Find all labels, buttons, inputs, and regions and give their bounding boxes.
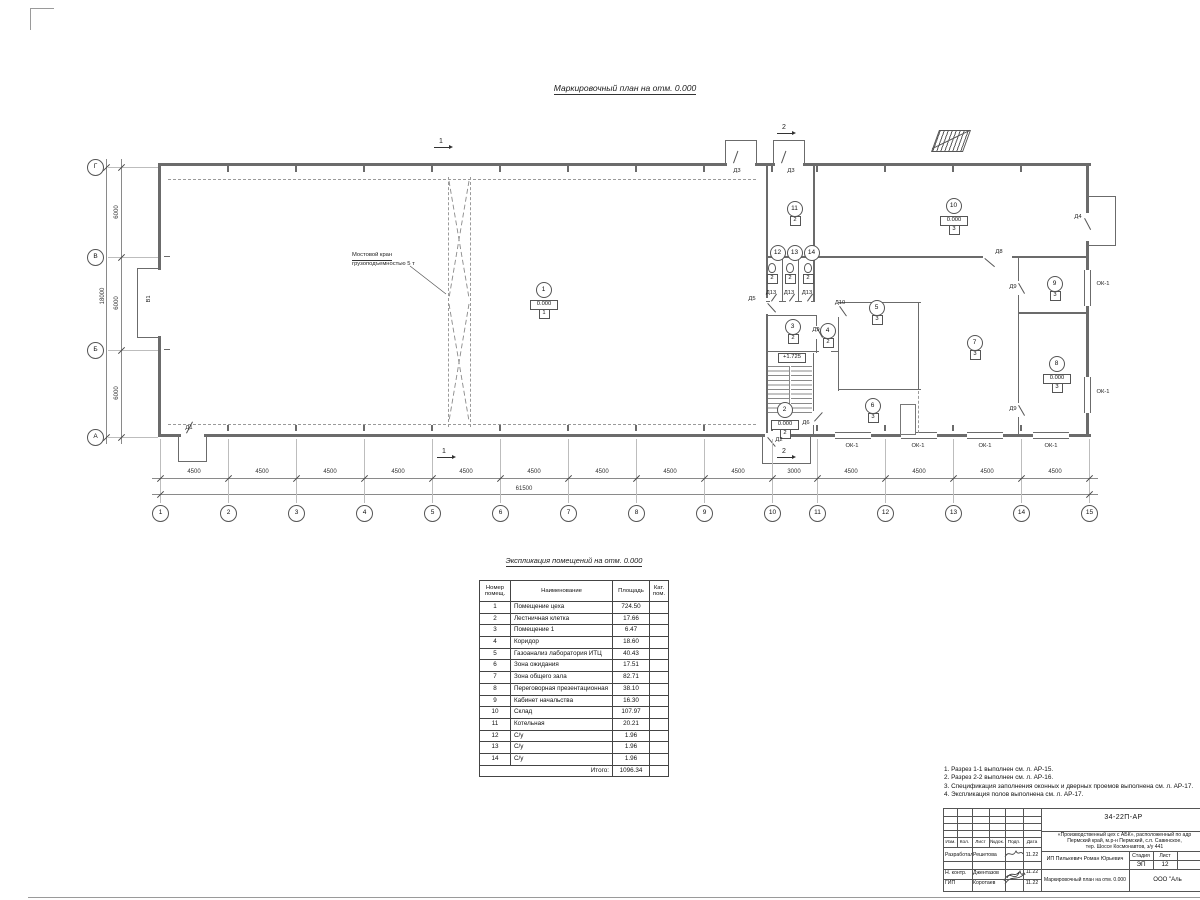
notes-block: 1. Разрез 1-1 выполнен см. л. АР-15.2. Р… [944,766,1198,800]
axis-bubble: 5 [424,505,441,522]
wall [756,140,757,164]
stamp-grid-line [944,879,1041,880]
zone-boundary [918,391,919,433]
room-category-cell [650,625,669,637]
axis-bubble: 2 [220,505,237,522]
section-mark-line [777,457,792,458]
axis-extension-line [296,439,297,503]
col-header-name: Наименование [511,581,613,602]
wall [762,463,811,464]
crane-label-line1: Мостовой кран [352,252,392,261]
doc-number: 34-22П-АР [1041,814,1200,822]
room-category-box: 2 [790,216,801,226]
drawing-sheet: { "titles": { "plan": "Маркировочный пла… [0,0,1200,900]
column-tick [499,166,500,172]
stamp-grid-line [1041,809,1042,891]
door-label: Д9 [999,285,1027,291]
section-mark-line [777,133,792,134]
room-name-cell: Газоанализ лаборатория ИТЦ [511,648,613,660]
axis-bubble: 15 [1081,505,1098,522]
room-category-cell [650,637,669,649]
column-tick [164,256,170,257]
column-tick [635,425,636,431]
axis-extension-line [108,257,158,258]
stamp-grid-line [972,809,973,891]
window-label: ОК-1 [838,444,866,450]
room-category-cell [650,730,669,742]
column-tick [1020,425,1021,431]
date-developer: 11.22 [1024,853,1040,859]
org-name: ООО "Аль [1129,877,1200,884]
table-row: 10Склад107.97 [480,707,669,719]
col-header-area: Площадь [613,581,650,602]
axis-extension-line [432,439,433,503]
door-opening [181,433,204,439]
crane-label-line2: грузоподъемностью 5 т [352,261,415,267]
room-level-mark: 0.000 [530,300,558,310]
door-label: Д9 [999,407,1027,413]
name-developer: Решетова [973,853,997,859]
table-row: 6Зона ожидания17.51 [480,660,669,672]
room-area-cell: 82.71 [613,672,650,684]
exterior-stair-hatch [931,130,971,152]
axis-bubble: 9 [696,505,713,522]
stamp-grid-line [1005,809,1006,891]
table-row: 14С/у1.96 [480,753,669,765]
room-category-box: 3 [970,350,981,360]
axis-bubble: 12 [877,505,894,522]
crane-bridge-edge [448,177,449,427]
dim-value: 4500 [182,469,206,475]
date-gip: 11.22 [1024,881,1040,887]
room-number-bubble: 8 [1049,356,1065,372]
room-name-cell: Переговорная презентационная [511,683,613,695]
dim-value: 4500 [250,469,274,475]
col-header-category: Кат. пом. [650,581,669,602]
section-mark-arrow [792,455,796,459]
column-tick [363,425,364,431]
room-area-cell: 724.50 [613,602,650,614]
table-row: 4Коридор18.60 [480,637,669,649]
section-mark-number: 2 [778,448,790,455]
room-number-cell: 11 [480,718,511,730]
role-gip: ГИП [945,881,955,887]
door-label: Д13 [793,291,821,297]
column-tick [952,166,953,172]
dim-value: 4500 [522,469,546,475]
column-tick [884,425,885,431]
room-name-cell: Котельная [511,718,613,730]
wall [773,140,805,141]
window-ok1 [1033,432,1069,439]
section-mark-line [437,457,452,458]
column-tick [771,166,772,172]
window-ok1 [835,432,871,439]
axis-bubble: 10 [764,505,781,522]
door-label: Д1 [175,426,203,432]
room-name-cell: Помещение 1 [511,625,613,637]
door-label: Д3 [723,169,751,175]
wall [137,337,161,338]
stamp-grid-line [944,830,1041,831]
wall [206,437,207,462]
role-developer: Разработал [945,853,973,859]
table-row: 13С/у1.96 [480,742,669,754]
name-ncontrol: Джентазов [973,871,999,877]
room-category-box: 3 [1050,291,1061,301]
section-mark-line [434,147,449,148]
room-name-cell: Лестничная клетка [511,613,613,625]
dim-total: 18000 [100,281,106,311]
axis-extension-line [568,439,569,503]
room-number-bubble: 9 [1047,276,1063,292]
client-name: ИП Пилькевич Роман Юрьевич [1041,857,1129,863]
total-category-cell [650,765,669,777]
door-label: Д8 [985,250,1013,256]
crane-leader-line [410,266,446,294]
room-category-cell [650,613,669,625]
axis-extension-line [108,167,158,168]
room-number-cell: 14 [480,753,511,765]
dim-value: 4500 [907,469,931,475]
room-name-cell: Зона ожидания [511,660,613,672]
stamp-grid-line [1177,851,1178,869]
room-area-cell: 18.60 [613,637,650,649]
toilet-icon [768,263,776,273]
dim-value: 4500 [726,469,750,475]
wall [816,315,817,326]
crane-bridge-edge [470,177,471,427]
room-area-cell: 17.66 [613,613,650,625]
stamp-grid-line [1153,851,1154,869]
stamp-grid-line [1041,869,1200,870]
axis-bubble: 3 [288,505,305,522]
wall [831,351,838,352]
window-ok1 [967,432,1003,439]
room-name-cell: Зона общего зала [511,672,613,684]
col-podp: Подп. [1005,840,1023,845]
window-ok1 [1084,270,1091,306]
stamp-grid-line [1129,860,1200,861]
room-name-cell: С/у [511,730,613,742]
room-name-cell: Коридор [511,637,613,649]
note-item: 1. Разрез 1-1 выполнен см. л. АР-15. [944,766,1198,774]
room-category-box: 2 [767,274,778,284]
column-tick [703,166,704,172]
room-table-title: Экспликация помещений на отм. 0.000 [468,556,680,565]
window-label: ОК-1 [971,444,999,450]
total-label: Итого: [480,765,613,777]
dim-value: 4500 [318,469,342,475]
door-label: Д5 [738,297,766,303]
room-category-cell [650,672,669,684]
wall [158,434,1091,437]
wall [762,437,763,464]
door-label: Д3 [777,169,805,175]
wall [158,163,1091,166]
axis-extension-line [228,439,229,503]
column-tick [816,166,817,172]
wall [725,140,726,164]
wall [838,389,921,390]
room-name-cell: Склад [511,707,613,719]
axis-bubble: 4 [356,505,373,522]
title-block: 34-22П-АР «Производственный цех с АБК», … [943,808,1200,892]
col-data: Дата [1023,840,1041,845]
room-number-cell: 4 [480,637,511,649]
wall [810,437,811,464]
col-kol: Кол. [957,840,972,845]
dim-total: 61500 [506,486,542,492]
stamp-grid-line [944,837,1041,838]
dim-value: 6000 [114,200,120,224]
room-area-cell: 1.96 [613,753,650,765]
total-value: 1096.34 [613,765,650,777]
room-table-title-text: Экспликация помещений на отм. 0.000 [506,556,643,567]
stamp-grid-line [944,861,1041,862]
room-explication-table: Номер помещ. Наименование Площадь Кат. п… [479,580,669,777]
room-number-bubble: 7 [967,335,983,351]
room-name-cell: Помещение цеха [511,602,613,614]
wall [137,268,138,338]
room-category-box: 3 [872,315,883,325]
room-category-box: 3 [1052,383,1063,393]
wall [178,461,207,462]
column-tick [295,425,296,431]
room-category-box: 2 [785,274,796,284]
stamp-grid-line [944,869,1041,870]
table-row: 11Котельная20.21 [480,718,669,730]
stage-value: ЭП [1129,862,1153,869]
column-tick [952,425,953,431]
toilet-icon [804,263,812,273]
column-tick [499,425,500,431]
column-tick [227,166,228,172]
room-level-mark: 0.000 [940,216,968,226]
stamp-grid-line [1041,831,1200,832]
wall [838,317,839,391]
col-header-number: Номер помещ. [480,581,511,602]
column-tick [635,166,636,172]
room-category-cell [650,695,669,707]
axis-bubble: 7 [560,505,577,522]
wall [1018,257,1019,281]
room-category-box: 2 [823,338,834,348]
room-area-cell: 38.10 [613,683,650,695]
wall [1089,196,1116,197]
table-row: 9Кабинет начальства16.30 [480,695,669,707]
axis-extension-line [500,439,501,503]
room-category-cell [650,602,669,614]
room-category-cell [650,742,669,754]
crane-label: Мостовой кран грузоподъемностью 5 т [352,252,415,269]
window-label: ОК-1 [1089,390,1117,396]
room-number-cell: 5 [480,648,511,660]
stage-label: Стадия [1129,854,1153,860]
wall [811,301,814,302]
frame-corner-v [30,8,31,30]
room-name-cell: Кабинет начальства [511,695,613,707]
axis-extension-line [108,350,158,351]
section-mark-arrow [449,145,453,149]
stamp-grid-line [957,809,958,847]
plan-title-text: Маркировочный план на отм. 0.000 [554,83,696,95]
axis-extension-line [364,439,365,503]
crane-bridge-cross [449,181,469,421]
room-number-cell: 12 [480,730,511,742]
column-tick [363,166,364,172]
dim-value: 4500 [839,469,863,475]
window-label: ОК-1 [1089,282,1117,288]
column-tick [703,425,704,431]
axis-extension-line [636,439,637,503]
stair-level-mark: +1.725 [778,353,806,363]
dim-value: 4500 [975,469,999,475]
sheet-title: Маркировочный план на отм. 0.000 [1042,878,1128,884]
room-number-bubble: 10 [946,198,962,214]
date-ncontrol: 11.22 [1024,870,1040,876]
room-number-bubble: 1 [536,282,552,298]
room-area-cell: 6.47 [613,625,650,637]
axis-bubble: 13 [945,505,962,522]
room-number-cell: 7 [480,672,511,684]
section-mark-number: 1 [438,448,450,455]
section-mark-arrow [792,131,796,135]
axis-extension-line [817,439,818,503]
room-area-cell: 17.51 [613,660,650,672]
dim-value: 3000 [782,469,806,475]
room-name-cell: С/у [511,742,613,754]
door-swing [984,258,995,267]
dim-value: 4500 [658,469,682,475]
stamp-grid-line [1129,851,1130,891]
note-item: 4. Экспликация полов выполнена см. л. АР… [944,791,1198,799]
axis-bubble: 6 [492,505,509,522]
dim-value: 4500 [1043,469,1067,475]
dim-value: 4500 [454,469,478,475]
col-ndok: №док. [989,840,1005,845]
door-label: Д4 [1064,215,1092,221]
room-category-cell [650,753,669,765]
room-category-box: 1 [539,309,550,319]
room-level-mark: 0.000 [1043,374,1071,384]
door-label: Д10 [826,301,854,307]
room-category-box: 2 [788,334,799,344]
column-tick [431,166,432,172]
dim-line [152,494,1098,495]
room-number-cell: 10 [480,707,511,719]
section-mark-arrow [452,455,456,459]
wall [766,315,817,316]
axis-extension-line [704,439,705,503]
door-label: Д2 [765,438,793,444]
axis-bubble: Б [87,342,104,359]
wall [773,140,774,164]
col-list: Лист [972,840,989,845]
wall [813,425,814,437]
equipment-box [900,404,916,435]
room-category-cell [650,683,669,695]
gate-label: В1 [147,284,153,312]
wall [795,301,802,302]
room-number-cell: 2 [480,613,511,625]
room-category-box: 3 [868,413,879,423]
wall [158,163,161,270]
plan-title: Маркировочный план на отм. 0.000 [520,83,730,93]
axis-extension-line [953,439,954,503]
signature-icon [1004,848,1024,860]
wall [1115,196,1116,246]
crane-rail [168,424,756,425]
table-row: 2Лестничная клетка17.66 [480,613,669,625]
room-name-cell: С/у [511,753,613,765]
room-number-bubble: 13 [787,245,803,261]
sheet-number: 12 [1153,862,1177,869]
room-category-box: 3 [949,225,960,235]
sheet-label: Лист [1153,854,1177,860]
section-mark-number: 2 [778,124,790,131]
wall [918,302,919,390]
name-gip: Коротаев [973,881,995,887]
column-tick [227,425,228,431]
frame-corner-h [30,8,54,9]
crane-rail [168,179,756,180]
column-tick [884,166,885,172]
wall [1018,417,1019,437]
axis-extension-line [108,437,158,438]
room-area-cell: 20.21 [613,718,650,730]
axis-bubble: В [87,249,104,266]
axis-bubble: 11 [809,505,826,522]
wall [779,301,786,302]
room-number-cell: 3 [480,625,511,637]
room-category-cell [650,648,669,660]
door-opening [727,162,755,168]
room-area-cell: 40.43 [613,648,650,660]
column-tick [164,349,170,350]
wall [1089,245,1116,246]
room-number-cell: 13 [480,742,511,754]
stamp-grid-line [944,816,1041,817]
section-mark-number: 1 [435,138,447,145]
stamp-grid-line [989,809,990,847]
axis-bubble: 14 [1013,505,1030,522]
room-number-cell: 8 [480,683,511,695]
column-tick [295,166,296,172]
room-area-cell: 1.96 [613,742,650,754]
dim-value: 6000 [114,381,120,405]
room-area-cell: 16.30 [613,695,650,707]
wall [158,336,161,437]
table-row: 12С/у1.96 [480,730,669,742]
axis-bubble: Г [87,159,104,176]
wall [1018,312,1086,314]
wall [804,140,805,164]
dim-value: 4500 [590,469,614,475]
table-row: 3Помещение 16.47 [480,625,669,637]
window-label: ОК-1 [904,444,932,450]
dim-line [106,159,107,444]
toilet-icon [786,263,794,273]
frame-bottom-line [28,897,1200,898]
dim-line [121,159,122,444]
stamp-grid-line [1023,809,1024,891]
window-label: ОК-1 [1037,444,1065,450]
room-number-cell: 6 [480,660,511,672]
door-swing [767,303,776,313]
room-area-cell: 1.96 [613,730,650,742]
room-number-bubble: 5 [869,300,885,316]
